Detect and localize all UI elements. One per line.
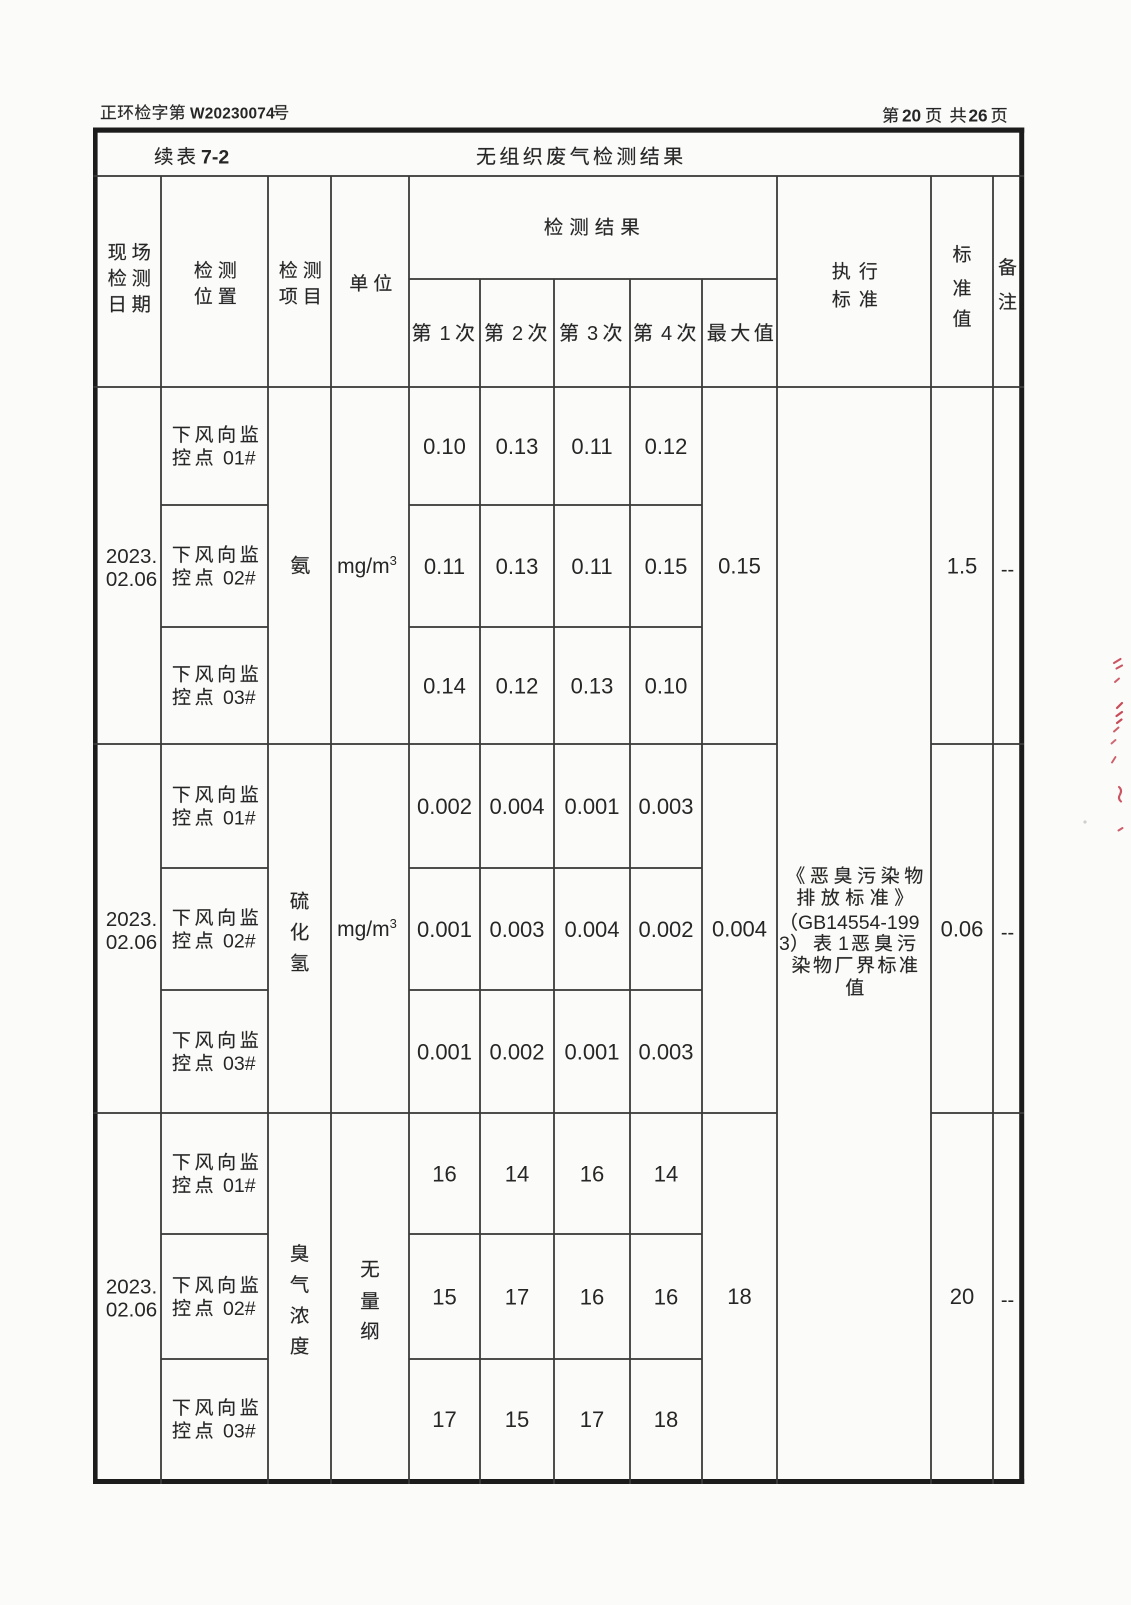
svg-text:01#: 01# <box>223 448 256 470</box>
svg-text:0.001: 0.001 <box>417 917 472 942</box>
svg-text:02.06: 02.06 <box>106 931 157 954</box>
svg-text:mg/m3: mg/m3 <box>337 553 397 578</box>
svg-text:--: -- <box>1001 922 1014 944</box>
svg-text:0.003: 0.003 <box>638 794 693 819</box>
svg-text:02#: 02# <box>223 1298 256 1320</box>
svg-text:03#: 03# <box>223 1053 256 1075</box>
svg-text:0.15: 0.15 <box>718 554 761 579</box>
svg-text:7-2: 7-2 <box>201 147 229 169</box>
svg-text:0.001: 0.001 <box>417 1040 472 1065</box>
svg-text:0.001: 0.001 <box>564 1040 619 1065</box>
svg-text:2023.: 2023. <box>106 1276 157 1299</box>
svg-text:0.15: 0.15 <box>645 554 688 579</box>
svg-text:0.12: 0.12 <box>496 674 539 699</box>
svg-text:0.004: 0.004 <box>712 917 767 942</box>
svg-text:0.002: 0.002 <box>417 794 472 819</box>
svg-text:0.13: 0.13 <box>496 554 539 579</box>
svg-text:02.06: 02.06 <box>106 1298 157 1321</box>
svg-text:0.11: 0.11 <box>571 434 612 459</box>
svg-text:3: 3 <box>587 323 598 345</box>
svg-text:0.11: 0.11 <box>424 554 465 579</box>
svg-text:1.5: 1.5 <box>947 554 978 579</box>
svg-text:01#: 01# <box>223 808 256 830</box>
svg-text:16: 16 <box>654 1285 678 1310</box>
svg-text:15: 15 <box>505 1407 529 1432</box>
svg-text:18: 18 <box>727 1284 751 1309</box>
svg-text:0.12: 0.12 <box>645 434 688 459</box>
svg-text:02#: 02# <box>223 568 256 590</box>
svg-text:16: 16 <box>580 1285 604 1310</box>
svg-text:W20230074: W20230074 <box>190 106 275 123</box>
svg-text:0.002: 0.002 <box>489 1040 544 1065</box>
svg-text:0.06: 0.06 <box>941 917 984 942</box>
svg-text:0.13: 0.13 <box>571 674 614 699</box>
svg-text:0.10: 0.10 <box>645 674 688 699</box>
svg-text:2023.: 2023. <box>106 908 157 931</box>
svg-text:20: 20 <box>950 1284 974 1309</box>
svg-text:2023.: 2023. <box>106 545 157 568</box>
svg-text:0.004: 0.004 <box>489 794 544 819</box>
svg-text:4: 4 <box>661 323 672 345</box>
svg-text:--: -- <box>1001 559 1014 581</box>
svg-text:14: 14 <box>654 1162 678 1187</box>
svg-text:0.002: 0.002 <box>638 917 693 942</box>
svg-text:18: 18 <box>654 1407 678 1432</box>
svg-text:1: 1 <box>838 933 849 955</box>
svg-text:0.004: 0.004 <box>564 917 619 942</box>
svg-text:17: 17 <box>580 1407 604 1432</box>
svg-text:20: 20 <box>902 106 921 126</box>
svg-text:--: -- <box>1001 1290 1014 1312</box>
svg-text:0.003: 0.003 <box>638 1040 693 1065</box>
svg-text:17: 17 <box>505 1285 529 1310</box>
svg-text:0.003: 0.003 <box>489 917 544 942</box>
svg-text:3: 3 <box>779 933 790 955</box>
svg-text:2: 2 <box>512 323 523 345</box>
svg-text:14: 14 <box>505 1162 529 1187</box>
svg-text:15: 15 <box>432 1285 456 1310</box>
svg-text:0.001: 0.001 <box>564 794 619 819</box>
svg-text:16: 16 <box>432 1162 456 1187</box>
svg-text:0.13: 0.13 <box>496 434 539 459</box>
svg-text:17: 17 <box>432 1407 456 1432</box>
svg-text:GB14554-199: GB14554-199 <box>798 912 919 934</box>
svg-text:02#: 02# <box>223 931 256 953</box>
svg-text:26: 26 <box>968 106 987 126</box>
svg-text:02.06: 02.06 <box>106 568 157 591</box>
svg-text:01#: 01# <box>223 1175 256 1197</box>
svg-text:1: 1 <box>439 323 450 345</box>
svg-text:0.14: 0.14 <box>423 674 466 699</box>
svg-text:03#: 03# <box>223 687 256 709</box>
svg-text:mg/m3: mg/m3 <box>337 916 397 941</box>
svg-text:0.10: 0.10 <box>423 434 466 459</box>
svg-text:03#: 03# <box>223 1421 256 1443</box>
svg-text:0.11: 0.11 <box>571 554 612 579</box>
svg-text:16: 16 <box>580 1162 604 1187</box>
